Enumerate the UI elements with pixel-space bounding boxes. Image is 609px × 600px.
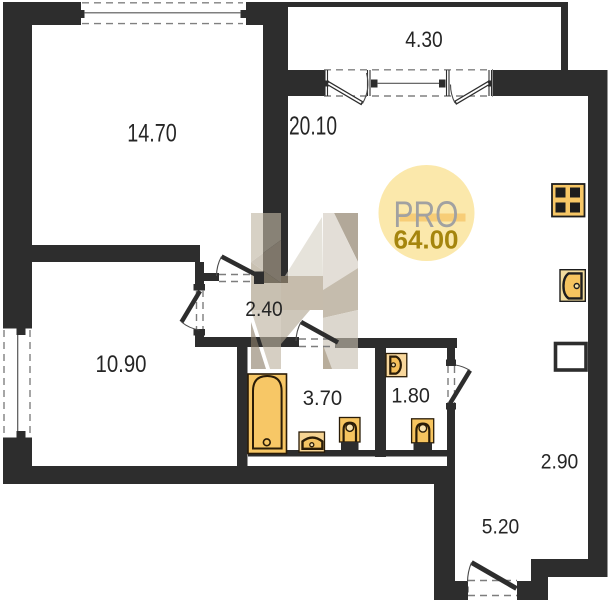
svg-text:20.10: 20.10: [289, 111, 337, 141]
svg-text:10.90: 10.90: [96, 351, 147, 378]
svg-text:2.90: 2.90: [541, 449, 579, 474]
svg-text:3.70: 3.70: [303, 385, 342, 410]
svg-text:1.80: 1.80: [391, 383, 430, 408]
svg-text:5.20: 5.20: [482, 514, 519, 539]
svg-text:14.70: 14.70: [127, 120, 177, 148]
svg-text:2.40: 2.40: [245, 297, 282, 321]
svg-text:4.30: 4.30: [405, 27, 442, 52]
svg-text:64.00: 64.00: [394, 225, 459, 255]
